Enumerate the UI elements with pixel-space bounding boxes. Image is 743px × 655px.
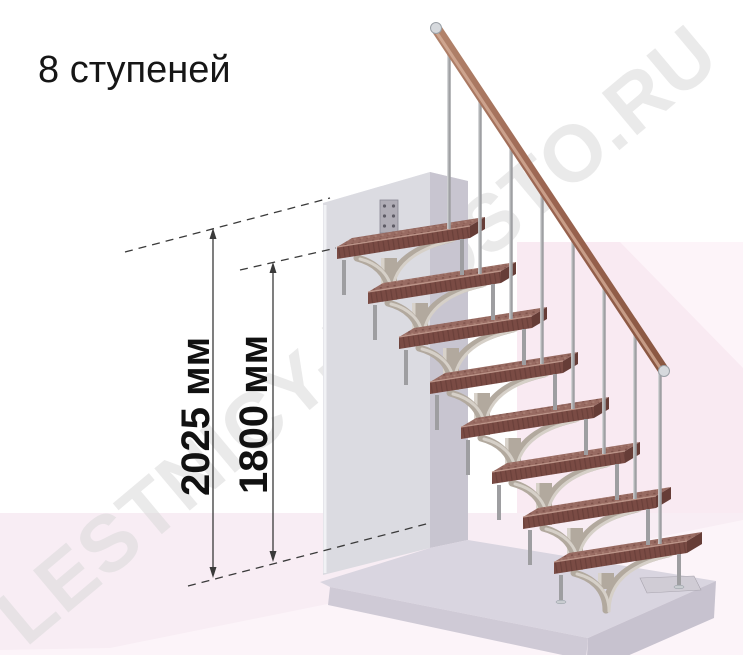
post-base-flange	[674, 585, 684, 589]
dimension-label-upper-tread-height: 1800 мм	[232, 335, 276, 494]
handrail-top-cap	[431, 23, 442, 34]
staircase-diagram-page: LESTNICY-PROSTO.RU	[0, 0, 743, 655]
dimension-label-total-height: 2025 мм	[174, 337, 218, 496]
page-title: 8 ступеней	[38, 49, 231, 91]
post-base-flange	[556, 600, 566, 604]
handrail-end-cap	[659, 366, 670, 377]
staircase-illustration: LESTNICY-PROSTO.RU	[0, 0, 743, 655]
wall-mounting-bracket	[380, 200, 398, 233]
stringer-base-plate	[640, 576, 701, 593]
